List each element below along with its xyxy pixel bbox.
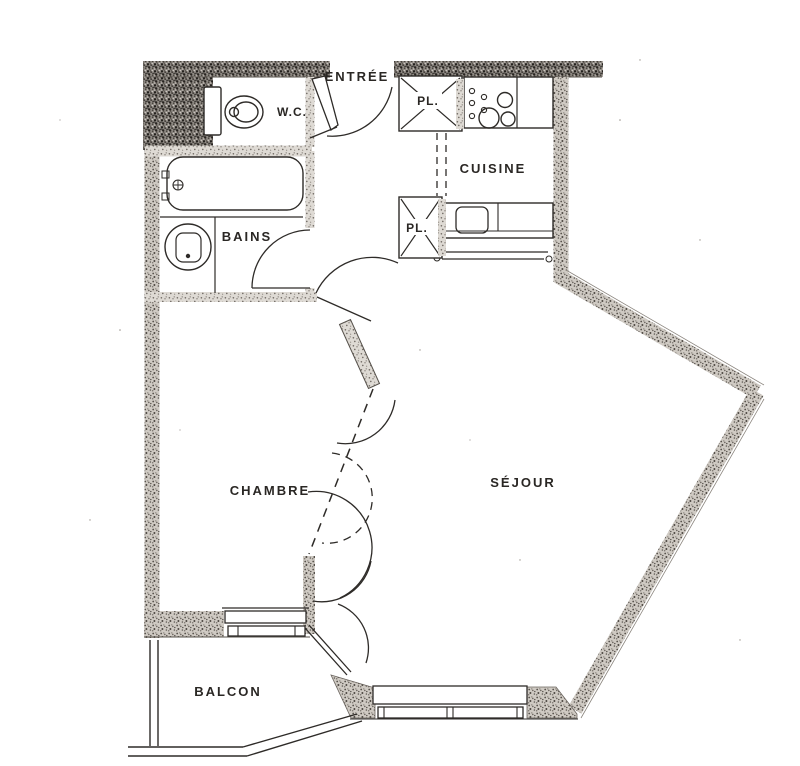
closet-lower-wall-strip bbox=[438, 199, 446, 256]
room-label-balcon: BALCON bbox=[194, 684, 262, 699]
wall-chambre-bottom bbox=[144, 611, 224, 637]
washbasin bbox=[165, 224, 211, 270]
room-label-bains: BAINS bbox=[222, 229, 272, 244]
room-label-sejour: SÉJOUR bbox=[490, 475, 555, 490]
chambre-window-pane-2 bbox=[228, 626, 305, 636]
sejour-window-pane-2 bbox=[378, 707, 523, 718]
room-label-cuisine: CUISINE bbox=[460, 161, 527, 176]
chambre-window-pane-1 bbox=[225, 611, 306, 623]
room-label-wc: W.C. bbox=[277, 105, 307, 119]
bathtub bbox=[167, 157, 303, 210]
room-label-pl-lower: PL. bbox=[406, 221, 428, 235]
room-label-pl-upper: PL. bbox=[417, 94, 439, 108]
toilet-tank bbox=[204, 87, 221, 135]
floor-plan-drawing: ENTRÉE W.C. CUISINE PL. PL. BAINS CHAMBR… bbox=[0, 0, 800, 766]
sejour-window-pane-1 bbox=[373, 686, 527, 704]
kitchen-counter-top bbox=[464, 77, 553, 128]
floor-plan-page: ENTRÉE W.C. CUISINE PL. PL. BAINS CHAMBR… bbox=[0, 0, 800, 766]
room-label-entree: ENTRÉE bbox=[325, 69, 390, 84]
washbasin-drain bbox=[186, 254, 190, 258]
closet-upper-wall-strip bbox=[456, 79, 464, 129]
room-label-chambre: CHAMBRE bbox=[230, 483, 310, 498]
